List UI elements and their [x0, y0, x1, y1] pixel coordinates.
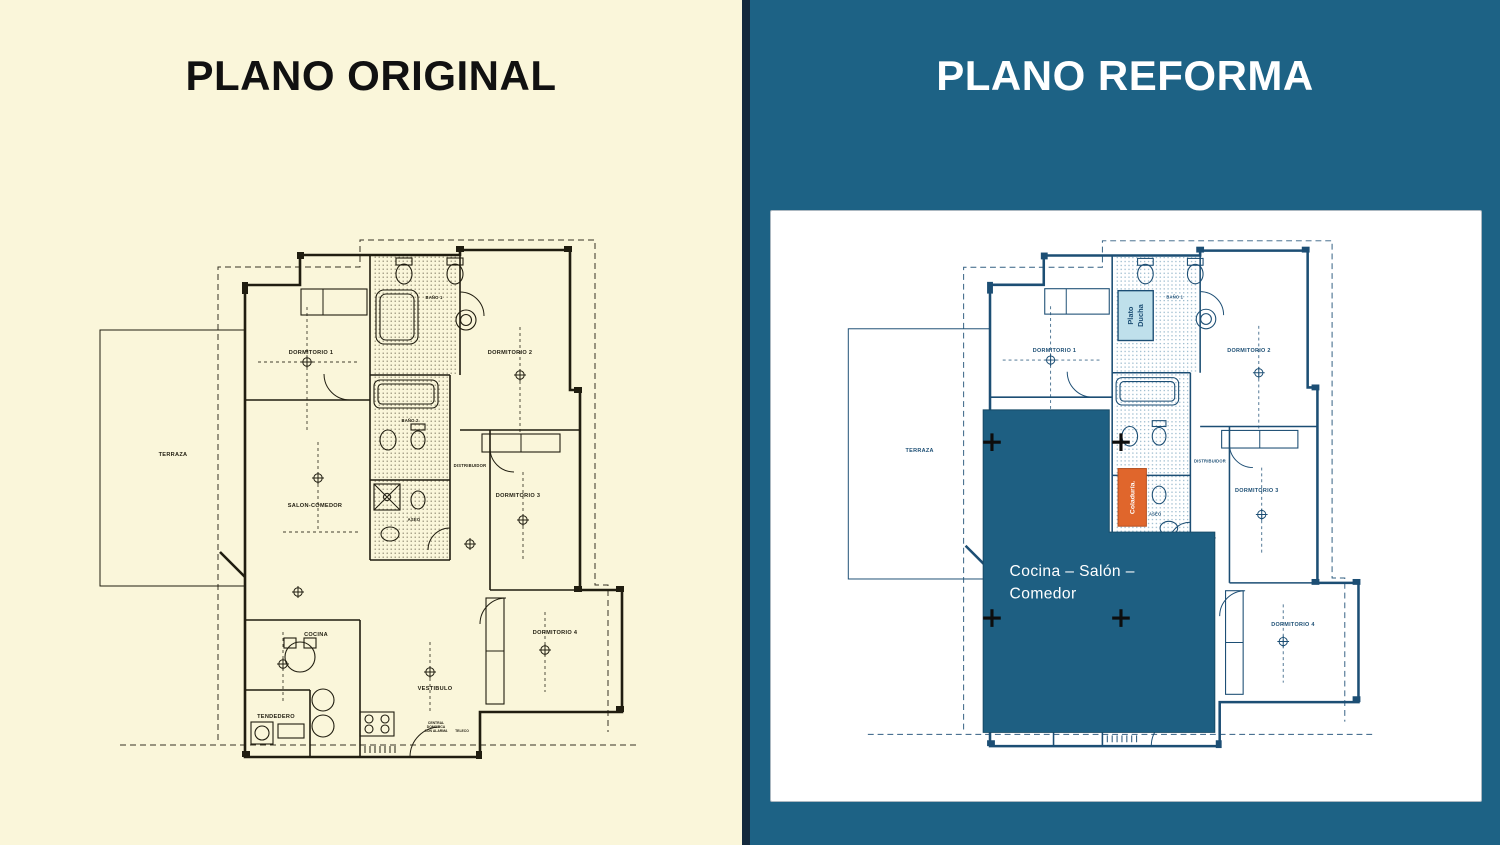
room-label-dormitorio2: DORMITORIO 2 [488, 350, 533, 356]
label-central-domotica-3: CON ALARMA [424, 729, 448, 733]
reform-plan-panel: PLANO REFORMA [750, 0, 1500, 845]
room-label-aseo: ASEO [408, 517, 421, 522]
room-label-dormitorio2: DORMITORIO 2 [1227, 348, 1271, 354]
room-label-terraza: TERRAZA [159, 452, 188, 458]
room-label-dormitorio4: DORMITORIO 4 [533, 630, 578, 636]
terraza-door [220, 552, 245, 577]
room-label-cocina: COCINA [304, 632, 328, 638]
bathtub2-fixture [374, 380, 438, 408]
room-label-dormitorio3: DORMITORIO 3 [496, 493, 541, 499]
room-label-salon-comedor: SALON-COMEDOR [288, 503, 343, 509]
reform-panel-title: PLANO REFORMA [750, 52, 1500, 100]
shower-tray-fixture [374, 484, 400, 510]
kitchen-table [284, 638, 316, 672]
sink-fixture-bath1 [456, 310, 476, 330]
room-label-dormitorio1: DORMITORIO 1 [289, 350, 334, 356]
bed-dorm1 [301, 289, 367, 315]
room-label-terraza: TERRAZA [906, 448, 934, 454]
label-teleco: TELECO [455, 729, 469, 733]
closet-dorm3 [1222, 430, 1298, 448]
plato-ducha-label-line1: Plato [1126, 306, 1135, 325]
plato-ducha-label-line2: Ducha [1136, 303, 1145, 327]
overlay-label-line2: Comedor [1010, 586, 1077, 603]
coladuria-label: Coladuría. [1130, 481, 1137, 514]
original-panel-title: PLANO ORIGINAL [0, 52, 742, 100]
wardrobe-dorm4 [486, 598, 504, 704]
room-label-dormitorio4: DORMITORIO 4 [1271, 622, 1315, 628]
room-label-aseo: ASEO [1149, 511, 1162, 516]
original-plan-panel: PLANO ORIGINAL [0, 0, 742, 845]
room-label-distribuidor: DISTRIBUIDOR [454, 463, 487, 468]
room-label-dormitorio1: DORMITORIO 1 [1033, 348, 1077, 354]
room-label-bano1: BAÑO 1 [1166, 294, 1183, 299]
closet-dorm3 [482, 434, 560, 452]
terraza-outline [100, 330, 245, 586]
room-label-tendedero: TENDEDERO [257, 714, 295, 720]
original-floor-plan: TERRAZA DORMITORIO 1 DORMITORIO 2 BAÑO 1… [98, 232, 658, 762]
sink-fixture-bath1 [1196, 309, 1216, 329]
panel-divider [742, 0, 750, 845]
room-label-dormitorio3: DORMITORIO 3 [1235, 488, 1279, 494]
comparison-graphic: PLANO ORIGINAL [0, 0, 1500, 845]
bathtub1-fixture [376, 290, 418, 344]
room-label-distribuidor: DISTRIBUIDOR [1194, 459, 1226, 464]
reform-floor-plan: TERRAZA DORMITORIO 1 DORMITORIO 2 BAÑO 1… [846, 233, 1394, 751]
radiator-ticks [360, 746, 395, 753]
bed-dorm1 [1045, 289, 1110, 314]
room-label-bano2: BAÑO 2 [401, 418, 418, 423]
plato-ducha-highlight: Plato Ducha [1118, 291, 1153, 341]
overlay-label-line1: Cocina – Salón – [1010, 563, 1135, 580]
laundry-fixtures [251, 722, 304, 744]
coladuria-highlight: Coladuría. [1118, 469, 1146, 527]
reform-plan-card: TERRAZA DORMITORIO 1 DORMITORIO 2 BAÑO 1… [770, 210, 1482, 802]
bathtub2-fixture [1116, 378, 1179, 405]
wardrobe-dorm4 [1226, 591, 1244, 695]
room-label-bano1: BAÑO 1 [425, 295, 442, 300]
room-label-vestibulo: VESTIBULO [418, 686, 453, 692]
radiator-ticks [1102, 735, 1136, 742]
kitchen-appliances [312, 689, 394, 737]
